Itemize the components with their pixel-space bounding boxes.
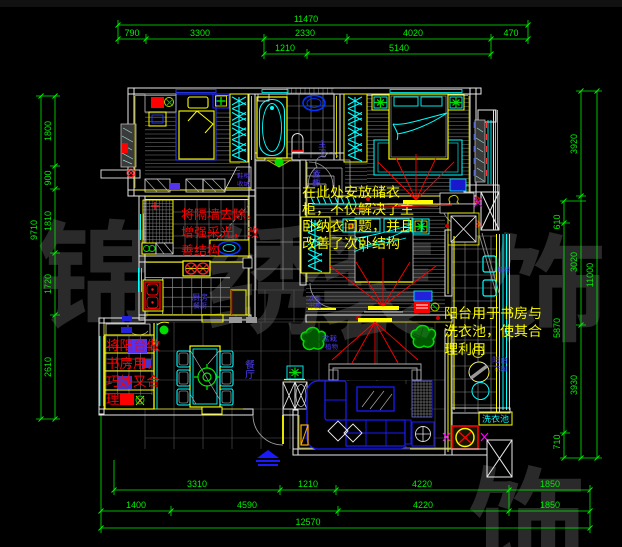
svg-text:1850: 1850 (540, 500, 560, 510)
svg-text:12570: 12570 (295, 517, 320, 527)
svg-text:1850: 1850 (540, 479, 560, 489)
svg-text:9710: 9710 (29, 220, 39, 240)
svg-text:3020: 3020 (569, 252, 579, 272)
svg-text:1720: 1720 (43, 274, 53, 294)
svg-text:11470: 11470 (294, 14, 318, 24)
svg-text:3930: 3930 (569, 375, 579, 395)
svg-text:5140: 5140 (389, 43, 409, 53)
svg-text:610: 610 (552, 214, 562, 229)
svg-text:1210: 1210 (275, 43, 295, 53)
svg-text:1210: 1210 (298, 479, 318, 489)
svg-text:11000: 11000 (585, 263, 595, 287)
svg-text:4020: 4020 (403, 28, 423, 38)
svg-text:470: 470 (503, 28, 518, 38)
svg-text:4590: 4590 (237, 500, 257, 510)
svg-text:4220: 4220 (413, 500, 433, 510)
svg-text:3920: 3920 (569, 134, 579, 154)
svg-text:3300: 3300 (190, 28, 210, 38)
svg-text:1810: 1810 (43, 211, 53, 231)
svg-text:2610: 2610 (43, 357, 53, 377)
svg-text:790: 790 (124, 28, 139, 38)
svg-text:900: 900 (43, 170, 53, 185)
svg-text:1800: 1800 (43, 121, 53, 141)
svg-text:2330: 2330 (295, 28, 315, 38)
svg-text:3310: 3310 (187, 479, 207, 489)
svg-text:5870: 5870 (552, 318, 562, 338)
svg-text:710: 710 (552, 434, 562, 449)
svg-text:1400: 1400 (126, 500, 146, 510)
svg-text:4220: 4220 (412, 479, 432, 489)
